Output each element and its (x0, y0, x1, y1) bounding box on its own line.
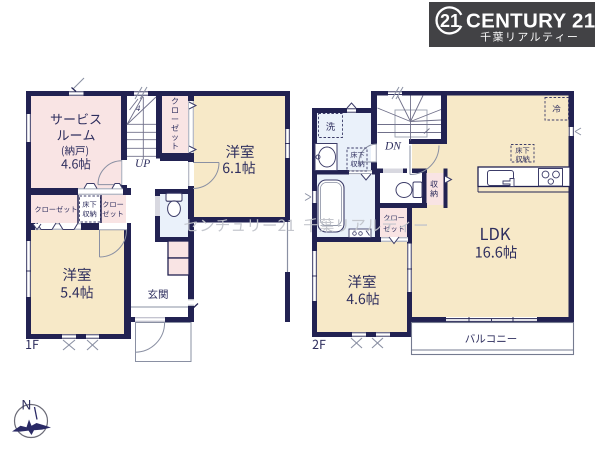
svg-text:CENTURY 21: CENTURY 21 (466, 10, 595, 33)
svg-text:DN: DN (384, 141, 402, 153)
svg-text:21: 21 (440, 11, 460, 31)
svg-text:N: N (22, 398, 32, 413)
svg-text:UP: UP (135, 158, 150, 170)
